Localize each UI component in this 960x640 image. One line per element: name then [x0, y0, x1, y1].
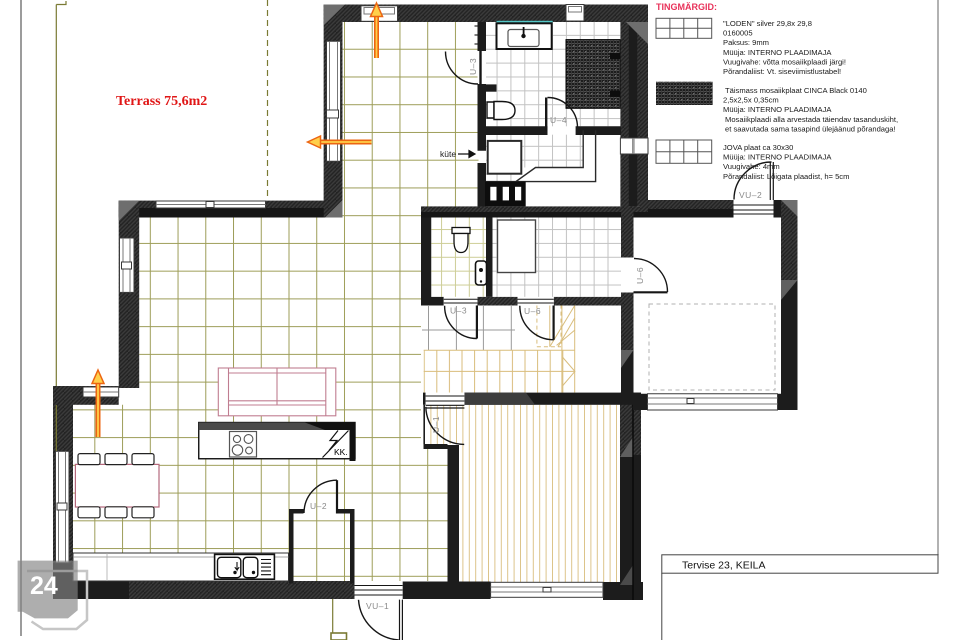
svg-text:TINGMÄRGID:: TINGMÄRGID: [656, 2, 717, 12]
svg-text:U–3: U–3 [468, 58, 478, 75]
svg-text:JOVA plaat ca 30x30: JOVA plaat ca 30x30 [723, 143, 793, 152]
svg-text:U–1: U–1 [431, 416, 441, 433]
svg-text:Põrandaliist: Vt. siseviimistl: Põrandaliist: Vt. siseviimistlustabel! [723, 67, 841, 76]
svg-text:U–4: U–4 [550, 115, 567, 125]
svg-text:Vuugivahe: võtta mosaiikplaadi: Vuugivahe: võtta mosaiikplaadi järgi! [723, 57, 846, 66]
svg-text:VU–1: VU–1 [366, 601, 389, 611]
svg-text:U–6: U–6 [635, 267, 645, 284]
svg-text:VU–2: VU–2 [739, 190, 762, 200]
svg-text:küte: küte [440, 149, 456, 159]
svg-text:Müüja: INTERNO PLAADIMAJA: Müüja: INTERNO PLAADIMAJA [723, 105, 832, 114]
svg-text:Müüja: INTERNO PLAADIMAJA: Müüja: INTERNO PLAADIMAJA [723, 153, 832, 162]
svg-text:et saavutada sama tasapind üle: et saavutada sama tasapind ülejäänud põr… [725, 124, 896, 133]
svg-text:U–3: U–3 [450, 306, 467, 316]
svg-text:Paksus: 9mm: Paksus: 9mm [723, 38, 769, 47]
svg-text:Terrass 75,6m2: Terrass 75,6m2 [116, 94, 207, 109]
svg-text:Põrandaliist: Lõigata plaadist: Põrandaliist: Lõigata plaadist, h= 5cm [723, 172, 849, 181]
svg-text:U–2: U–2 [310, 501, 327, 511]
svg-text:Mosaiikplaadi alla arvestada t: Mosaiikplaadi alla arvestada täiendav ta… [725, 115, 898, 124]
svg-text:0160005: 0160005 [723, 29, 753, 38]
svg-text:2,5x2,5x 0,35cm: 2,5x2,5x 0,35cm [723, 96, 779, 105]
svg-text:KK.: KK. [334, 447, 348, 457]
svg-text:Müüja: INTERNO PLAADIMAJA: Müüja: INTERNO PLAADIMAJA [723, 48, 832, 57]
svg-text:Täismass mosaiikplaat CINCA Bl: Täismass mosaiikplaat CINCA Black 0140 [725, 86, 867, 95]
svg-text:24: 24 [30, 572, 58, 600]
svg-text:"LODEN" silver 29,8x 29,8: "LODEN" silver 29,8x 29,8 [723, 19, 812, 28]
svg-text:U–6: U–6 [524, 306, 541, 316]
svg-text:Tervise 23, KEILA: Tervise 23, KEILA [682, 560, 765, 572]
svg-text:Vuugivahe: 4mm: Vuugivahe: 4mm [723, 162, 780, 171]
